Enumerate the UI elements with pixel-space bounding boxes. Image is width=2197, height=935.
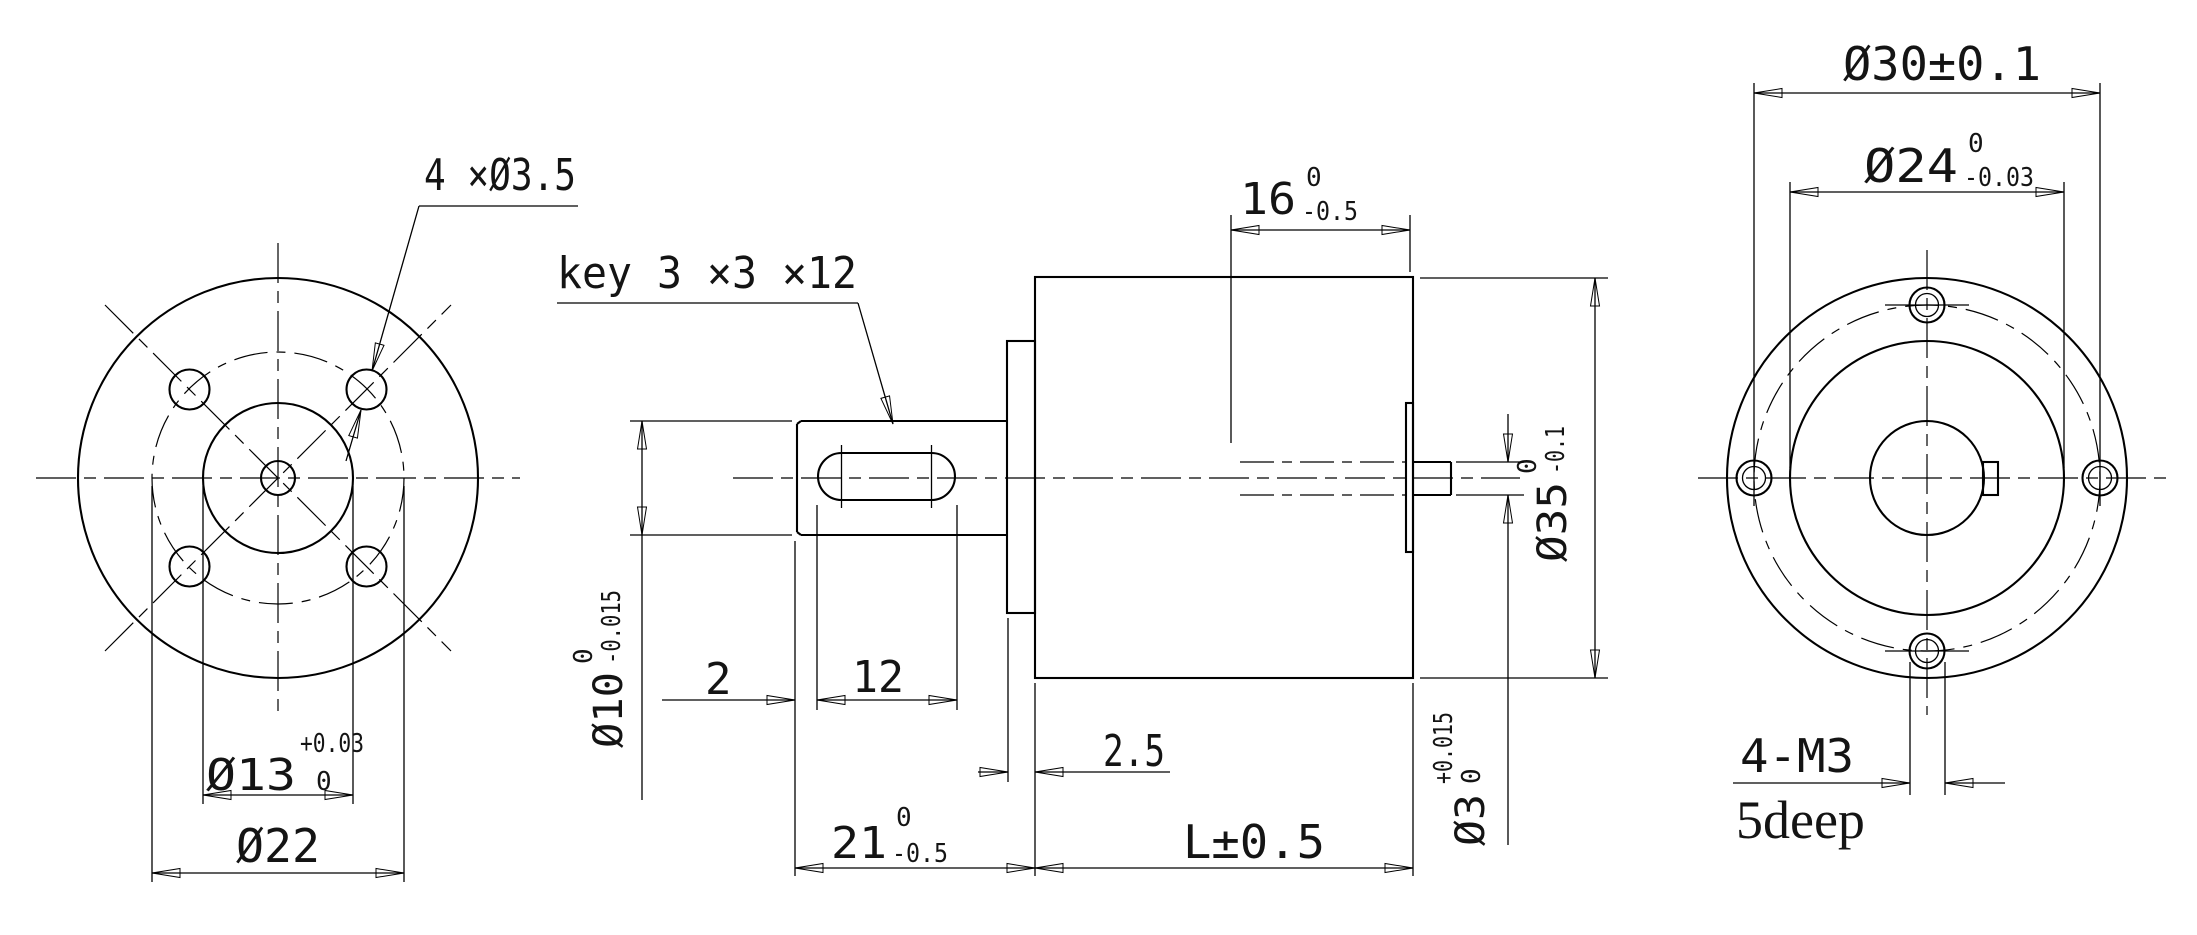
dim-2: 2 (662, 541, 795, 876)
dim-2-value: 2 (705, 654, 732, 705)
dim-2-5-value: 2.5 (1103, 726, 1165, 777)
dim-d3-tol-lower: 0 (1457, 768, 1487, 784)
dim-L: L±0.5 (1035, 683, 1413, 876)
dim-L-value: L±0.5 (1183, 815, 1325, 869)
dim-21-tol-upper: 0 (896, 803, 912, 833)
thread-callout: 4-M3 5deep (1733, 662, 2005, 850)
dim-d10-tol-upper: 0 (569, 648, 599, 664)
side-view: key 3 ×3 ×12 16 0 -0.5 Ø10 0 -0.015 2 (557, 163, 1608, 876)
dim-d10-tol-lower: -0.015 (597, 590, 627, 664)
dim-16: 16 0 -0.5 (1231, 163, 1410, 443)
dim-21: 21 0 -0.5 (795, 683, 1035, 876)
dim-d13-tol-upper: +0.03 (300, 729, 364, 759)
dim-d35-value: Ø35 (1530, 482, 1576, 562)
front-view-centerlines (1698, 250, 2168, 715)
dim-d3: Ø3 +0.015 0 (1429, 414, 1524, 846)
dim-16-tol-upper: 0 (1306, 163, 1322, 193)
thread-callout-text: 4-M3 (1740, 729, 1854, 783)
dim-d3-value: Ø3 (1448, 794, 1494, 846)
key-callout-leader (557, 303, 893, 424)
front-view: Ø30±0.1 Ø24 0 -0.03 4-M3 5deep (1698, 37, 2168, 850)
depth-note-text: 5deep (1736, 790, 1865, 850)
dim-16-value: 16 (1240, 174, 1296, 225)
drawing-sheet: 4 ×Ø3.5 Ø13 +0.03 0 Ø22 (0, 0, 2197, 935)
engineering-drawing-canvas: 4 ×Ø3.5 Ø13 +0.03 0 Ø22 (0, 0, 2197, 935)
dim-d24-value: Ø24 (1864, 139, 1958, 193)
dim-d24-tol-lower: -0.03 (1964, 163, 2034, 193)
key-callout-text: key 3 ×3 ×12 (557, 248, 857, 299)
dim-d35-tol-upper: 0 (1513, 458, 1543, 474)
dim-d22-value: Ø22 (236, 819, 320, 873)
hole-callout-text: 4 ×Ø3.5 (424, 150, 576, 201)
dim-21-value: 21 (831, 818, 887, 869)
dim-d10-value: Ø10 (586, 672, 632, 748)
dim-12-value: 12 (852, 652, 904, 703)
dim-d3-tol-upper: +0.015 (1429, 712, 1459, 784)
hole-callout-leader (346, 206, 578, 461)
dim-d13-tol-lower: 0 (316, 767, 332, 797)
key-slot (818, 445, 955, 508)
dim-d24-tol-upper: 0 (1968, 129, 1984, 159)
dim-21-tol-lower: -0.5 (892, 839, 948, 869)
rear-view-centerlines (36, 243, 520, 712)
dim-d30-value: Ø30±0.1 (1843, 37, 2041, 91)
rear-view: 4 ×Ø3.5 Ø13 +0.03 0 Ø22 (36, 150, 578, 882)
dim-d35-tol-lower: -0.1 (1541, 426, 1571, 474)
dim-16-tol-lower: -0.5 (1302, 197, 1358, 227)
rear-boss (1406, 403, 1413, 552)
dim-2-5: 2.5 (978, 618, 1170, 782)
dim-d13-value: Ø13 (206, 750, 296, 801)
front-flange-disc (1007, 341, 1035, 613)
